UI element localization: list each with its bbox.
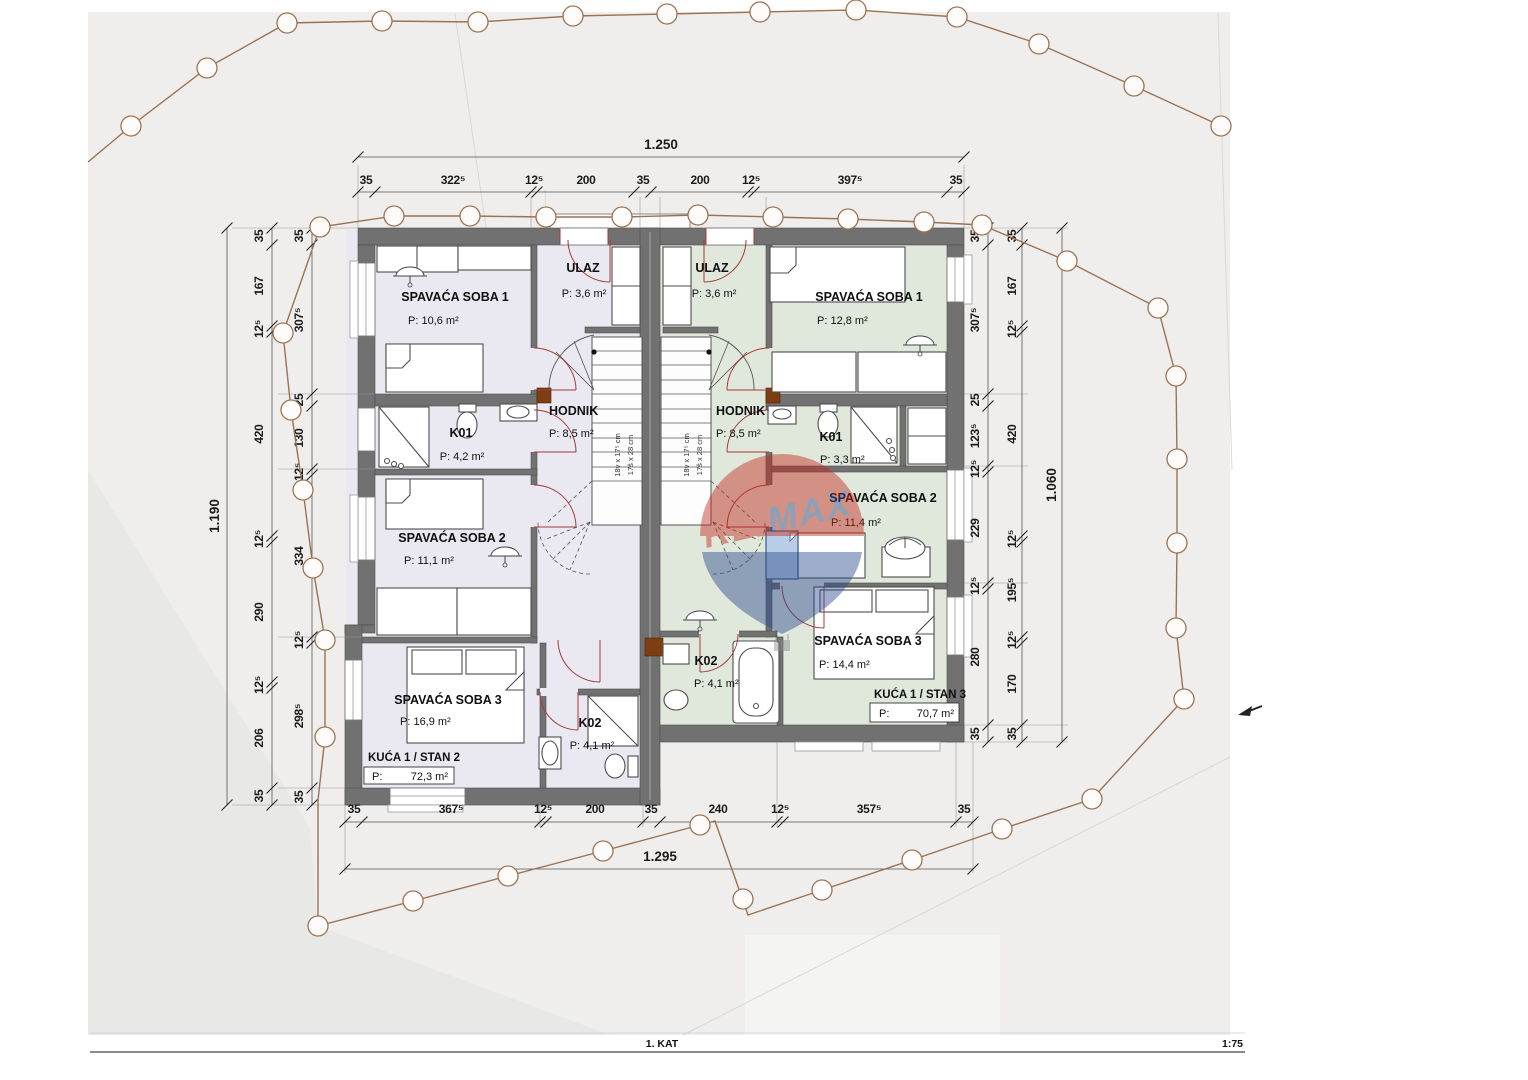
floor-title: 1. KAT [646,1038,679,1050]
dim: 35 [968,727,982,740]
stair-note: 18v x 17⁵ cm [613,433,622,477]
room-area: P: 8,5 m² [716,428,761,440]
dim: 35 [950,173,963,187]
room-area: P: 3,6 m² [692,288,737,300]
pillow [466,650,516,674]
room-name: SPAVAĆA SOBA 3 [814,633,921,648]
room-area: P: 12,8 m² [817,315,868,327]
wardrobe [457,588,531,635]
pillow [412,650,462,674]
dim-total-top: 1.250 [644,137,678,152]
dim: 25 [968,393,982,406]
dim: 12⁵ [534,802,552,816]
dim-total-bottom: 1.295 [643,849,677,864]
dim: 35 [958,802,971,816]
room-name: ULAZ [695,261,729,275]
room-name: SPAVAĆA SOBA 3 [394,692,501,707]
dim: 12⁵ [1005,320,1019,338]
dim: 240 [708,802,728,816]
window-right-bedroom2 [947,470,964,540]
dim: 229 [968,518,982,538]
direction-arrow-icon [1238,706,1262,716]
window-left-bedroom3 [345,660,362,720]
dim: 167 [252,276,266,296]
dim: 123⁵ [968,424,982,448]
room-area: P: 11,1 m² [404,555,454,567]
dim: 167 [1005,276,1019,296]
dim: 420 [252,424,266,444]
room-name: SPAVAĆA SOBA 2 [398,530,505,545]
dim: 170 [1005,674,1019,694]
room-area: P: 4,2 m² [440,451,485,463]
dim: 195⁵ [1005,578,1019,602]
room-name: HODNIK [549,404,598,418]
dim: 357⁵ [857,802,881,816]
dim: 420 [1005,424,1019,444]
dim: 35 [252,229,266,242]
toilet-tank [459,404,476,412]
floorplan-drawing: SPAVAĆA SOBA 1 P: 10,6 m² ULAZ P: 3,6 m²… [0,0,1528,1080]
wardrobe [377,588,457,635]
dim: 12⁵ [1005,530,1019,548]
dim: 35 [292,790,306,803]
dim: 35 [292,229,306,242]
floorplan-page: SPAVAĆA SOBA 1 P: 10,6 m² ULAZ P: 3,6 m²… [0,0,1528,1080]
dim: 290 [252,602,266,622]
pillow [876,590,928,612]
room-name: SPAVAĆA SOBA 1 [815,289,922,304]
dim: 35 [1005,727,1019,740]
dim: 206 [252,728,266,748]
room-area: P: 4,1 m² [570,740,615,752]
dim: 298⁵ [292,704,306,728]
room-area: P: 3,3 m² [820,454,865,466]
dim: 397⁵ [838,173,862,187]
room-name: K02 [695,654,718,668]
stair-note: 18v x 17⁵ cm [682,433,691,477]
dim: 200 [576,173,596,187]
unit-area-prefix: P: [879,708,889,720]
room-name: K02 [579,716,602,730]
unit-area-value: 70,7 m² [917,708,955,720]
dim: 35 [360,173,373,187]
unit-title: KUĆA 1 / STAN 2 [368,751,460,764]
toilet [605,754,625,778]
toilet-tank [628,756,638,777]
dim: 307⁵ [968,308,982,332]
dim-total-left: 1.190 [207,499,222,533]
room-area: P: 14,4 m² [819,659,870,671]
entry-door-opening-right [706,228,754,245]
dim: 35 [637,173,650,187]
window-right-bedroom1 [947,257,964,302]
room-name: K01 [450,426,473,440]
dim: 12⁵ [1005,631,1019,649]
dim: 12⁵ [742,173,760,187]
room-name: SPAVAĆA SOBA 1 [401,289,508,304]
dim: 12⁵ [968,577,982,595]
basin [664,690,688,710]
dim: 12⁵ [525,173,543,187]
dim: 35 [348,802,361,816]
window-left-bath1 [358,408,375,451]
sink [663,644,689,664]
room-area: P: 8,5 m² [549,428,594,440]
room-name: ULAZ [566,261,600,275]
stair-note: 17š x 28 cm [626,435,635,475]
drawing-scale: 1:75 [1222,1038,1243,1050]
unit-title: KUĆA 1 / STAN 3 [874,688,966,701]
dim: 12⁵ [771,802,789,816]
dim: 280 [968,647,982,667]
title-block: 1. KAT 1:75 [90,1033,1245,1052]
room-area: P: 4,1 m² [694,678,739,690]
wardrobe [458,246,531,270]
dim: 35 [252,789,266,802]
dim: 200 [585,802,605,816]
plant-icon [885,537,925,559]
room-area: P: 10,6 m² [408,315,459,327]
dim: 12⁵ [252,320,266,338]
window-right-bedroom3 [947,597,964,655]
wall-bottom-right-unit [660,725,964,742]
dim-total-right: 1.060 [1044,468,1059,502]
dim: 307⁵ [292,308,306,332]
room-area: P: 16,9 m² [400,716,451,728]
window-left-bedroom1 [358,263,375,336]
wall-top [358,228,964,245]
dim: 367⁵ [439,802,463,816]
room-name: HODNIK [716,404,765,418]
unit-area-value: 72,3 m² [411,771,449,783]
wardrobe [858,352,946,392]
dim: 12⁵ [252,530,266,548]
window-left-bedroom2 [358,497,375,560]
dim: 322⁵ [441,173,465,187]
dim: 12⁵ [968,460,982,478]
dim: 12⁵ [252,676,266,694]
room-area: P: 3,6 m² [562,288,607,300]
unit-area-prefix: P: [372,771,382,783]
bathtub [733,641,779,723]
balloon-basket [774,640,790,651]
entry-door-opening-left [560,228,608,245]
dim: 200 [690,173,710,187]
dim: 35 [645,802,658,816]
room-name: K01 [820,430,843,444]
wardrobe [772,352,856,392]
stair-note: 17š x 28 cm [695,435,704,475]
dim: 12⁵ [292,631,306,649]
